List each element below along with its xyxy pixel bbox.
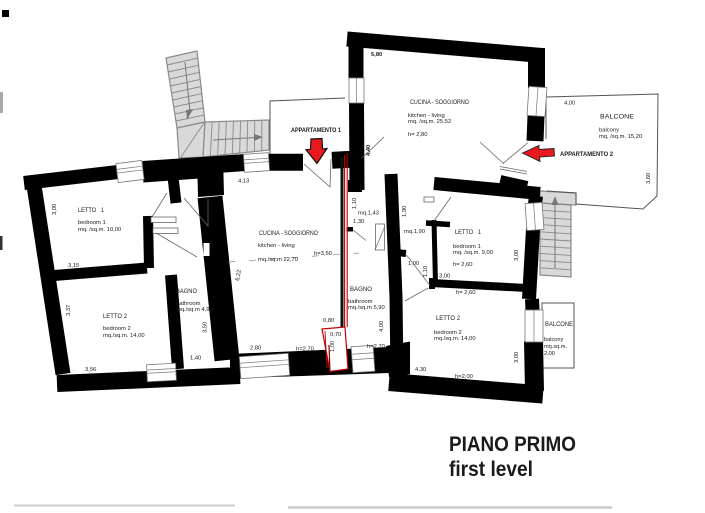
svg-text:h= 2,80: h= 2,80 [408,132,428,138]
svg-text:mq.1,90: mq.1,90 [404,229,425,235]
svg-text:1,30: 1,30 [353,219,364,225]
svg-text:CUCINA - SOGGIORNO: CUCINA - SOGGIORNO [410,99,469,106]
svg-text:4,13: 4,13 [238,179,249,185]
svg-text:3,00: 3,00 [52,204,58,215]
svg-text:APPARTAMENTO 1: APPARTAMENTO 1 [291,127,341,134]
svg-text:0,80: 0,80 [323,318,334,324]
svg-text:3,00: 3,00 [514,352,520,363]
svg-text:mq./sq.m. 14,00: mq./sq.m. 14,00 [103,333,145,339]
svg-text:balcony: balcony [599,128,619,134]
svg-text:2,80: 2,80 [250,346,261,352]
svg-text:h=2,70: h=2,70 [296,347,314,353]
svg-text:4,00: 4,00 [564,101,575,107]
svg-text:CUCINA - SOGGIORNO: CUCINA - SOGGIORNO [259,230,318,237]
svg-text:h= 2,60: h= 2,60 [453,262,473,268]
svg-text:BALCONE: BALCONE [600,114,634,121]
svg-text:kitchen - living: kitchen - living [258,243,295,249]
svg-text:mq. /sq.m. 25,52: mq. /sq.m. 25,52 [408,119,451,125]
svg-text:3,56: 3,56 [85,367,96,373]
svg-text:2,00: 2,00 [544,351,555,357]
svg-text:1,10: 1,10 [423,266,429,277]
svg-text:mq./sq.m 22,70: mq./sq.m 22,70 [258,257,298,263]
svg-text:1,40: 1,40 [190,356,201,362]
svg-text:4,00: 4,00 [379,321,385,332]
svg-text:LETTO 2: LETTO 2 [436,315,460,322]
svg-text:mq./sq.m 5,90: mq./sq.m 5,90 [348,305,385,311]
svg-text:mq. /sq.m. 9,00: mq. /sq.m. 9,00 [453,250,493,256]
svg-text:bedroom 1: bedroom 1 [78,220,106,226]
svg-text:h=3,50: h=3,50 [314,251,332,257]
svg-text:4,40: 4,40 [366,145,372,156]
svg-text:balcony: balcony [544,337,563,343]
svg-text:BAGNO: BAGNO [176,288,197,295]
svg-text:bedroom 2: bedroom 2 [103,326,131,332]
svg-text:h=2,70: h=2,70 [367,344,385,350]
svg-text:1,00: 1,00 [408,261,419,267]
svg-text:mq.sq.m.: mq.sq.m. [544,344,567,350]
svg-text:h= 2,60: h= 2,60 [456,290,476,296]
svg-text:LETTO 1: LETTO 1 [455,229,481,236]
svg-text:mq. /sq.m. 10,00: mq. /sq.m. 10,00 [78,227,121,233]
svg-text:mq.1,43: mq.1,43 [358,211,379,217]
svg-text:h=2,00: h=2,00 [455,374,473,380]
svg-text:3,15: 3,15 [68,263,79,269]
svg-text:3,50: 3,50 [203,322,209,333]
svg-text:mq./sq.m 4,90: mq./sq.m 4,90 [176,307,213,313]
svg-text:LETTO 1: LETTO 1 [78,207,104,214]
svg-text:5,80: 5,80 [371,52,382,58]
svg-text:1,10: 1,10 [352,198,358,209]
svg-text:BALCONE: BALCONE [545,321,573,328]
svg-text:1,90: 1,90 [402,206,408,217]
svg-text:3,00: 3,00 [514,250,520,261]
svg-text:BAGNO: BAGNO [350,286,372,293]
svg-text:0,70: 0,70 [330,332,341,338]
svg-text:PIANO PRIMO: PIANO PRIMO [449,433,576,456]
svg-text:APPARTAMENTO 2: APPARTAMENTO 2 [560,151,613,158]
svg-text:mq./sq.m. 14,00: mq./sq.m. 14,00 [434,336,476,342]
svg-text:mq. /sq.m. 15,20: mq. /sq.m. 15,20 [599,134,642,140]
svg-text:3,60: 3,60 [646,173,652,184]
svg-text:1,00: 1,00 [330,341,336,352]
svg-text:LETTO 2: LETTO 2 [103,313,127,320]
svg-text:3,00: 3,00 [439,274,450,280]
svg-text:3,37: 3,37 [66,305,72,316]
svg-text:4,30: 4,30 [415,367,426,373]
svg-text:first level: first level [449,458,533,481]
